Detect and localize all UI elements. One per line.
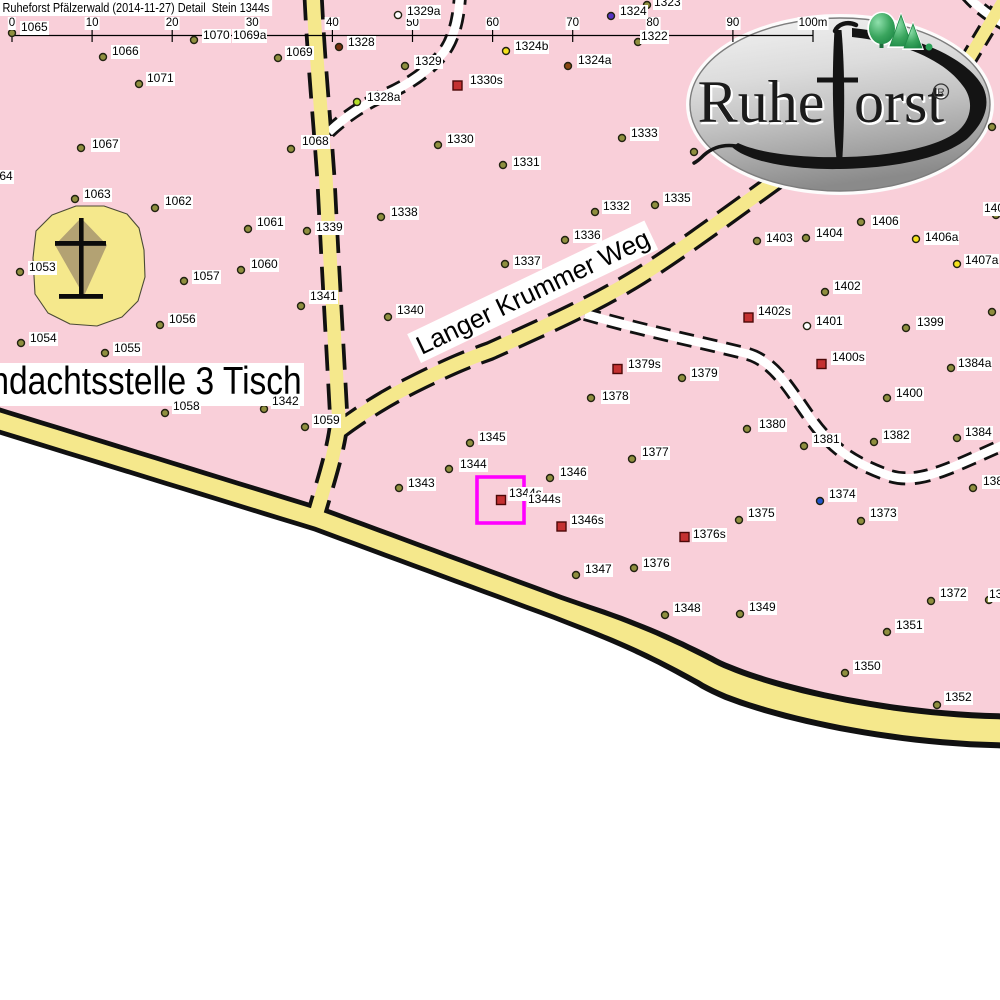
svg-text:orst: orst bbox=[854, 69, 944, 135]
svg-text:Ruhe: Ruhe bbox=[698, 69, 825, 135]
svg-text:R: R bbox=[937, 88, 944, 99]
